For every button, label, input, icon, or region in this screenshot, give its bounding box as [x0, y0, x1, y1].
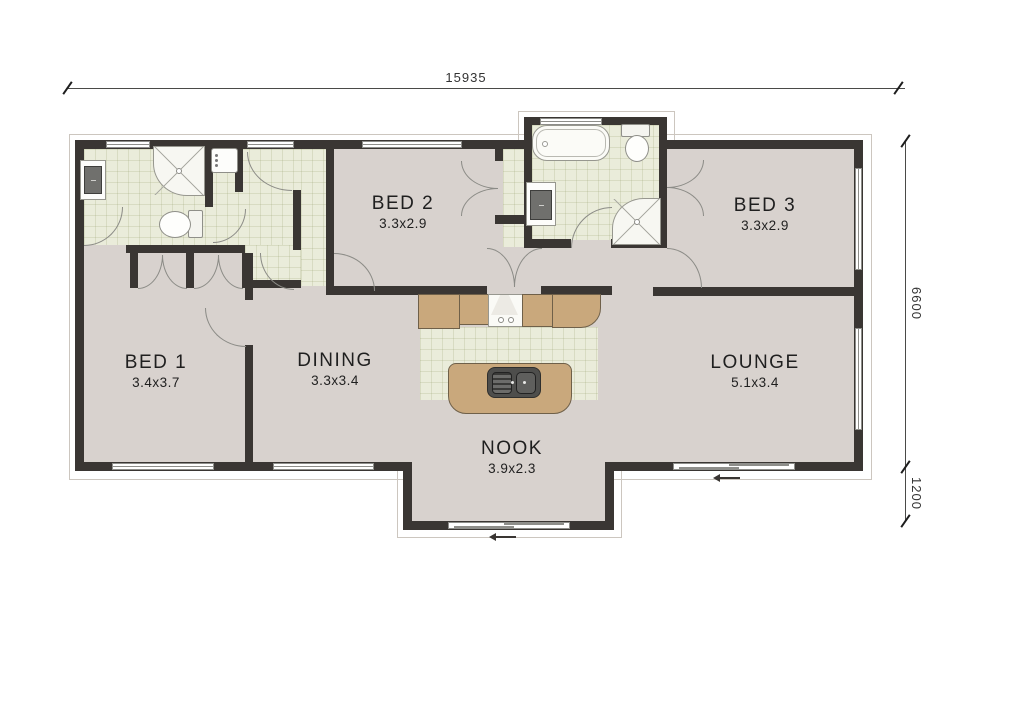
floor-plan: 15935 6600 1200: [0, 0, 1024, 702]
window-bed2: [362, 141, 462, 148]
room-label-bed3: BED 3 3.3x2.9: [690, 195, 840, 233]
top-dimension-label: 15935: [416, 70, 516, 85]
wall-bed2-right-stub: [495, 149, 503, 161]
room-label-lounge: LOUNGE 5.1x3.4: [680, 352, 830, 390]
sink-tap-dot: [523, 381, 526, 384]
window-laundry: [106, 141, 150, 148]
sliding-door-lounge: [673, 463, 795, 470]
sink-plain-bowl: [516, 372, 536, 394]
wall-hall-divider: [293, 190, 301, 250]
sink-tap-dot: [511, 381, 514, 384]
wall-bathroom1-bottom: [126, 245, 245, 253]
right-dimension-label-1200: 1200: [909, 464, 924, 522]
room-size: 3.3x3.4: [260, 373, 410, 388]
wall-bed3-bottom: [653, 287, 863, 296]
toilet-bowl-bathroom2: [625, 135, 649, 162]
toilet-bowl-bathroom1: [159, 211, 191, 238]
stove-fixture: [488, 294, 523, 327]
room-title: BED 2: [328, 193, 478, 215]
room-size: 3.9x2.3: [437, 461, 587, 476]
nook-wall-left: [403, 462, 412, 530]
wall-bed1-right-lower: [245, 345, 253, 462]
slide-direction-arrow: [716, 477, 740, 479]
room-title: DINING: [260, 350, 410, 372]
wall-bed1-right-upper: [245, 253, 253, 300]
room-title: NOOK: [437, 438, 587, 460]
window-hall: [247, 141, 294, 148]
room-title: BED 1: [81, 352, 231, 374]
window-bathroom2: [540, 118, 602, 125]
window-dining: [273, 463, 374, 470]
slide-direction-arrow: [492, 536, 516, 538]
kitchen-bench-2: [459, 294, 490, 325]
sliding-door-nook: [448, 522, 570, 529]
sink-drainer-bowl: [492, 372, 512, 394]
room-label-dining: DINING 3.3x3.4: [260, 350, 410, 388]
kitchen-bench-1: [418, 294, 460, 329]
laundry-tub-bowl: [84, 166, 102, 194]
exterior-wall-top-right: [659, 140, 863, 149]
room-label-bed2: BED 2 3.3x2.9: [328, 193, 478, 231]
double-sink-fixture: [487, 367, 541, 398]
room-label-bed1: BED 1 3.4x3.7: [81, 352, 231, 390]
window-lounge: [855, 328, 862, 430]
shower-fixture-bathroom2: [612, 198, 661, 245]
room-label-nook: NOOK 3.9x2.3: [437, 438, 587, 476]
vanity-basin-bathroom2: [530, 190, 552, 220]
room-size: 3.4x3.7: [81, 375, 231, 390]
kitchen-bench-4: [552, 294, 601, 328]
right-dimension-label-6600: 6600: [909, 268, 924, 338]
room-size: 5.1x3.4: [680, 375, 830, 390]
wall-bathroom2-bottom-left: [524, 239, 571, 248]
bathtub-fixture: [532, 125, 610, 161]
kitchen-bench-3: [522, 294, 553, 327]
wardrobe1-stub-mid: [186, 253, 194, 288]
shower-fixture-bathroom1: [153, 146, 205, 196]
stove-burners: [498, 317, 504, 323]
room-size: 3.3x2.9: [690, 218, 840, 233]
room-title: LOUNGE: [680, 352, 830, 374]
room-title: BED 3: [690, 195, 840, 217]
rangehood-icon: [491, 295, 518, 315]
wardrobe1-stub-left: [130, 253, 138, 288]
room-size: 3.3x2.9: [328, 216, 478, 231]
floor-tile-hall-corridor: [301, 149, 326, 286]
vanity-sink-fixture: [211, 148, 238, 173]
top-dimension-line: [67, 88, 905, 89]
nook-wall-right: [605, 462, 614, 530]
window-bed3: [855, 168, 862, 270]
floor-tile-hall-strip: [503, 149, 524, 247]
window-bed1: [112, 463, 214, 470]
